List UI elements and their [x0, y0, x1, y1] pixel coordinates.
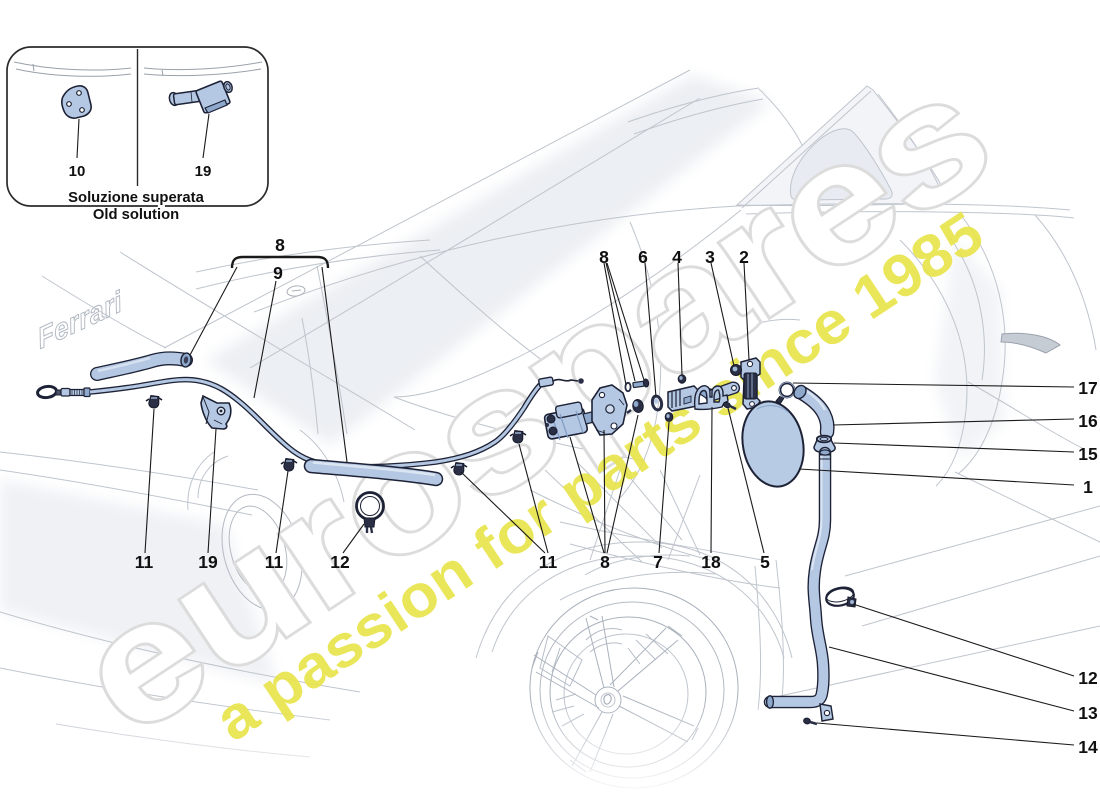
svg-text:7: 7: [653, 552, 663, 572]
svg-text:16: 16: [1078, 411, 1098, 431]
svg-text:14: 14: [1078, 737, 1098, 757]
svg-text:2: 2: [739, 247, 749, 267]
svg-text:19: 19: [195, 163, 212, 180]
svg-text:Soluzione superata: Soluzione superata: [68, 190, 204, 206]
svg-text:11: 11: [135, 552, 154, 572]
svg-text:3: 3: [705, 247, 715, 267]
svg-text:18: 18: [701, 552, 721, 572]
svg-text:11: 11: [265, 552, 284, 572]
svg-text:15: 15: [1078, 444, 1098, 464]
svg-text:9: 9: [273, 263, 283, 283]
svg-text:4: 4: [672, 247, 682, 267]
svg-text:Old solution: Old solution: [93, 207, 179, 223]
svg-text:10: 10: [69, 163, 86, 180]
svg-text:1: 1: [1083, 477, 1093, 497]
svg-text:6: 6: [638, 247, 648, 267]
svg-text:17: 17: [1078, 378, 1097, 398]
svg-text:8: 8: [599, 247, 609, 267]
svg-text:8: 8: [600, 552, 610, 572]
svg-text:5: 5: [760, 552, 770, 572]
svg-text:12: 12: [1078, 668, 1098, 688]
svg-text:11: 11: [539, 552, 558, 572]
svg-text:12: 12: [330, 552, 350, 572]
svg-text:19: 19: [198, 552, 218, 572]
svg-text:13: 13: [1078, 703, 1098, 723]
svg-text:8: 8: [275, 235, 285, 255]
